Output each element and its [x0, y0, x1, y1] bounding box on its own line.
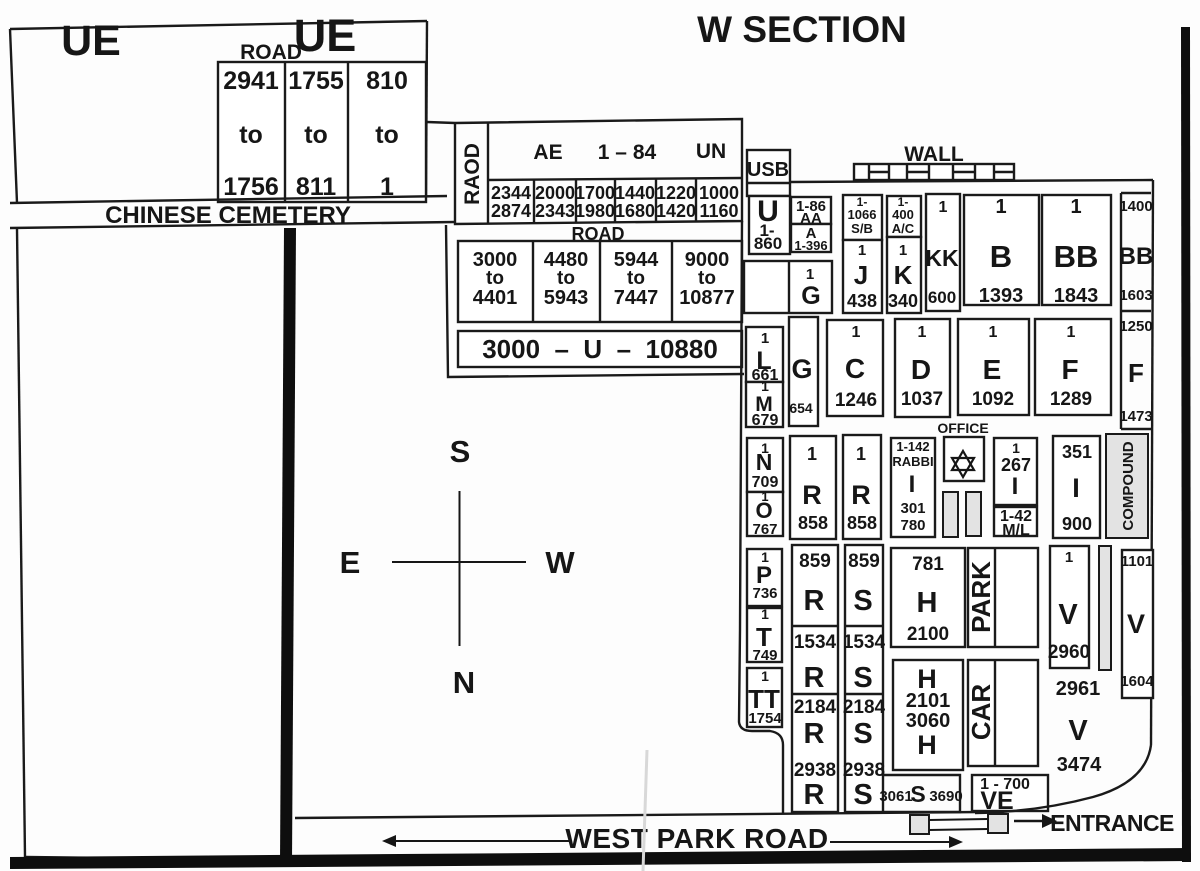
svg-text:1289: 1289	[1050, 389, 1092, 410]
svg-text:3000 – U – 10880: 3000 – U – 10880	[482, 334, 718, 364]
svg-text:679: 679	[752, 412, 779, 429]
svg-text:1: 1	[806, 266, 814, 283]
svg-text:1: 1	[995, 196, 1006, 218]
svg-text:R: R	[804, 779, 825, 811]
svg-text:1393: 1393	[979, 285, 1024, 307]
svg-text:301: 301	[900, 500, 925, 517]
svg-text:E: E	[983, 354, 1002, 385]
svg-text:S: S	[450, 434, 471, 469]
svg-text:1: 1	[918, 324, 927, 341]
svg-text:W: W	[545, 545, 575, 580]
svg-text:BB: BB	[1119, 243, 1154, 270]
svg-text:749: 749	[752, 647, 777, 664]
svg-text:ROAD: ROAD	[240, 41, 302, 64]
svg-text:N: N	[756, 449, 773, 475]
svg-text:781: 781	[912, 554, 944, 575]
svg-text:1534: 1534	[843, 632, 886, 653]
svg-text:S: S	[910, 781, 925, 807]
svg-text:1420: 1420	[656, 201, 696, 221]
svg-text:5943: 5943	[544, 287, 589, 309]
svg-text:2100: 2100	[907, 624, 949, 645]
svg-text:S: S	[853, 779, 872, 811]
svg-text:1: 1	[761, 668, 769, 684]
svg-text:R: R	[804, 718, 825, 750]
svg-text:4401: 4401	[473, 287, 518, 309]
svg-text:R: R	[802, 480, 822, 510]
svg-text:2961: 2961	[1056, 678, 1101, 700]
svg-text:1160: 1160	[699, 201, 738, 221]
svg-text:H: H	[917, 587, 938, 619]
svg-text:1: 1	[939, 199, 948, 216]
svg-text:V: V	[1068, 715, 1088, 747]
svg-text:10877: 10877	[679, 287, 735, 309]
svg-text:2874: 2874	[491, 201, 531, 221]
svg-text:PARK: PARK	[966, 561, 996, 633]
svg-text:F: F	[1061, 354, 1078, 385]
svg-text:1066: 1066	[848, 207, 877, 222]
svg-text:860: 860	[754, 234, 782, 253]
svg-text:BB: BB	[1054, 239, 1099, 274]
svg-text:1-396: 1-396	[794, 238, 827, 253]
svg-text:7447: 7447	[614, 287, 659, 309]
svg-text:1: 1	[761, 378, 769, 394]
svg-text:1250: 1250	[1119, 318, 1152, 335]
svg-text:WEST PARK ROAD: WEST PARK ROAD	[565, 823, 828, 854]
svg-text:S: S	[853, 585, 872, 617]
svg-text:1: 1	[852, 324, 861, 341]
svg-text:736: 736	[752, 585, 777, 602]
svg-text:1037: 1037	[901, 389, 943, 410]
svg-text:1604: 1604	[1120, 673, 1154, 690]
svg-text:267: 267	[1001, 455, 1031, 475]
svg-text:1: 1	[807, 444, 817, 464]
svg-text:1980: 1980	[575, 201, 615, 221]
svg-text:1000: 1000	[699, 183, 739, 203]
svg-text:1534: 1534	[794, 632, 837, 653]
svg-text:780: 780	[900, 517, 925, 534]
svg-text:1843: 1843	[1054, 285, 1099, 307]
svg-text:UN: UN	[696, 140, 726, 163]
svg-text:to: to	[375, 121, 399, 149]
svg-text:858: 858	[847, 513, 877, 533]
svg-text:A/C: A/C	[892, 221, 915, 236]
svg-text:to: to	[239, 121, 263, 149]
svg-text:ENTRANCE: ENTRANCE	[1050, 810, 1174, 836]
svg-text:H: H	[917, 730, 937, 760]
svg-text:3060: 3060	[906, 710, 951, 732]
svg-text:2343: 2343	[535, 201, 575, 221]
svg-text:UE: UE	[294, 10, 357, 61]
svg-text:2000: 2000	[535, 183, 575, 203]
svg-text:to: to	[627, 268, 645, 289]
svg-text:CAR: CAR	[966, 684, 996, 741]
svg-text:1400: 1400	[1119, 198, 1152, 215]
svg-text:767: 767	[752, 521, 777, 538]
svg-text:1092: 1092	[972, 389, 1014, 410]
svg-text:CHINESE CEMETERY: CHINESE CEMETERY	[105, 202, 351, 229]
svg-text:to: to	[557, 268, 575, 289]
svg-text:D: D	[911, 354, 931, 385]
svg-text:1755: 1755	[288, 67, 344, 95]
svg-text:1: 1	[899, 242, 907, 259]
svg-text:KK: KK	[925, 245, 959, 271]
svg-text:1 – 84: 1 – 84	[598, 141, 657, 164]
svg-text:V: V	[1127, 609, 1145, 639]
svg-text:1-142: 1-142	[896, 439, 929, 454]
svg-text:to: to	[486, 268, 504, 289]
svg-text:E: E	[340, 545, 361, 580]
svg-text:1473: 1473	[1119, 408, 1152, 425]
svg-text:2184: 2184	[794, 697, 837, 718]
svg-text:C: C	[845, 353, 865, 384]
svg-text:2941: 2941	[223, 67, 279, 95]
svg-text:351: 351	[1062, 442, 1092, 462]
svg-text:1: 1	[1067, 324, 1076, 341]
svg-text:400: 400	[892, 207, 914, 222]
svg-text:G: G	[801, 282, 820, 310]
svg-text:to: to	[304, 121, 328, 149]
svg-text:R: R	[851, 480, 871, 510]
svg-text:1: 1	[761, 330, 769, 347]
svg-text:1754: 1754	[748, 710, 782, 727]
svg-text:654: 654	[789, 400, 813, 416]
svg-text:F: F	[1128, 358, 1144, 388]
svg-text:1: 1	[761, 606, 769, 622]
svg-text:810: 810	[366, 67, 408, 95]
svg-text:RAOD: RAOD	[461, 143, 484, 205]
svg-text:M/L: M/L	[1002, 522, 1030, 539]
svg-text:3474: 3474	[1057, 754, 1102, 776]
svg-text:1: 1	[1012, 440, 1020, 456]
svg-text:600: 600	[928, 288, 956, 307]
svg-text:2184: 2184	[843, 697, 886, 718]
svg-text:I: I	[1012, 473, 1019, 500]
svg-text:438: 438	[847, 291, 877, 311]
svg-text:S: S	[853, 718, 872, 750]
svg-text:3690: 3690	[929, 788, 962, 805]
svg-text:OFFICE: OFFICE	[937, 420, 988, 436]
svg-text:859: 859	[848, 551, 880, 572]
svg-text:858: 858	[798, 513, 828, 533]
svg-text:AE: AE	[533, 141, 562, 164]
svg-text:RABBI: RABBI	[892, 454, 933, 469]
svg-text:2938: 2938	[794, 760, 836, 781]
svg-text:W SECTION: W SECTION	[697, 9, 907, 50]
svg-text:J: J	[854, 260, 868, 290]
svg-text:UE: UE	[61, 17, 121, 65]
svg-text:2960: 2960	[1048, 642, 1090, 663]
svg-text:R: R	[804, 662, 825, 694]
svg-text:V: V	[1058, 599, 1078, 631]
svg-text:1220: 1220	[656, 183, 696, 203]
svg-text:2344: 2344	[491, 183, 531, 203]
svg-text:1101: 1101	[1121, 553, 1154, 570]
svg-text:R: R	[804, 585, 825, 617]
svg-text:1440: 1440	[615, 183, 655, 203]
svg-text:1: 1	[856, 444, 866, 464]
svg-text:S: S	[853, 662, 872, 694]
svg-text:900: 900	[1062, 514, 1092, 534]
svg-text:859: 859	[799, 551, 831, 572]
svg-text:USB: USB	[747, 159, 789, 181]
svg-text:3061: 3061	[879, 788, 912, 805]
svg-text:1: 1	[858, 242, 866, 259]
svg-text:1700: 1700	[575, 183, 615, 203]
svg-text:1246: 1246	[835, 390, 877, 411]
svg-text:2101: 2101	[906, 690, 951, 712]
svg-text:WALL: WALL	[904, 143, 964, 166]
svg-text:I: I	[909, 471, 916, 498]
svg-text:1603: 1603	[1119, 287, 1152, 304]
svg-text:COMPOUND: COMPOUND	[1120, 441, 1137, 530]
svg-text:340: 340	[888, 291, 918, 311]
svg-text:S/B: S/B	[851, 221, 873, 236]
svg-text:K: K	[894, 260, 913, 290]
svg-text:1: 1	[1065, 549, 1073, 566]
svg-text:G: G	[791, 354, 812, 384]
svg-text:to: to	[698, 268, 716, 289]
svg-text:B: B	[990, 239, 1012, 274]
svg-text:N: N	[453, 665, 475, 700]
svg-text:2938: 2938	[843, 760, 885, 781]
svg-text:O: O	[755, 498, 772, 523]
svg-text:1: 1	[989, 324, 998, 341]
svg-text:I: I	[1072, 473, 1080, 503]
svg-text:1756: 1756	[223, 173, 279, 201]
svg-text:1: 1	[1070, 196, 1081, 218]
svg-text:1680: 1680	[615, 201, 655, 221]
